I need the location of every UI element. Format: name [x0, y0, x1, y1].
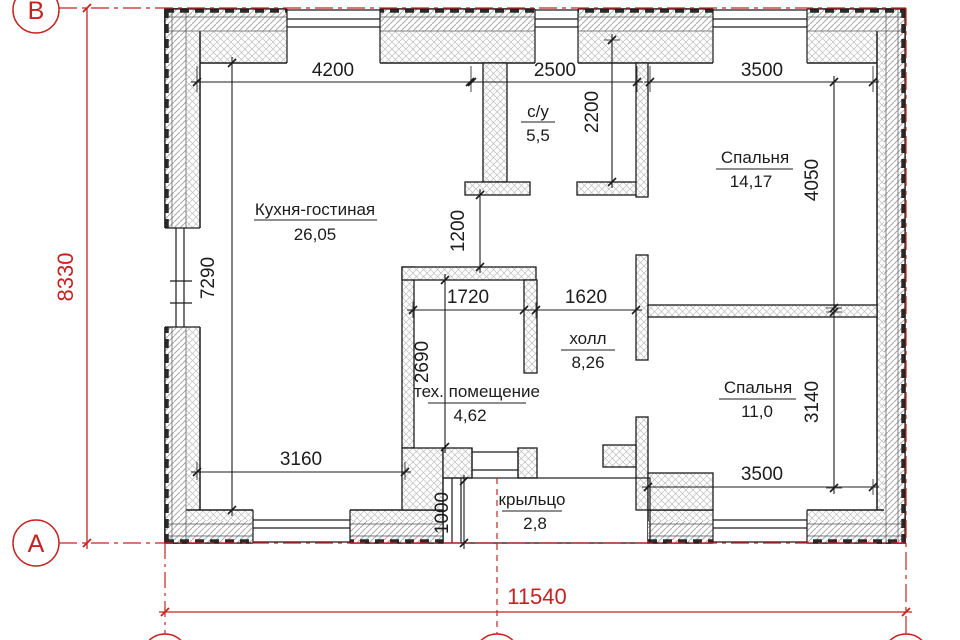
dim-passage: 1200: [448, 210, 469, 252]
grid-axis-b-label: В: [28, 0, 45, 25]
room-label-bath-area: 5,5: [526, 126, 550, 145]
room-label-porch-area: 2,8: [523, 514, 547, 533]
dim-kitchen-bottom-width: 3160: [280, 449, 322, 470]
dim-overall-width: 11540: [507, 584, 567, 609]
dim-bedroom2-width: 3500: [741, 464, 783, 485]
window-bedroom1-top: [713, 7, 807, 64]
room-label-bedroom1-area: 14,17: [730, 172, 773, 191]
room-label-kitchen-area: 26,05: [294, 225, 337, 244]
window-kitchen-bottom: [253, 508, 350, 545]
room-label-hall-name: холл: [569, 329, 606, 348]
floor-plan-drawing: 4200 2500 3500 2200 4050 7290 1200 1720 …: [0, 0, 960, 640]
room-label-bedroom2-name: Спальня: [724, 378, 792, 397]
dim-bedroom1-depth: 4050: [802, 159, 823, 201]
dim-tech-depth: 2690: [412, 341, 433, 383]
grid-axis-a-label: А: [28, 530, 45, 558]
window-kitchen-top: [287, 7, 380, 64]
room-label-bedroom1-name: Спальня: [721, 148, 789, 167]
window-bedroom2-bottom: [713, 508, 807, 545]
window-kitchen-left: [162, 228, 201, 327]
dim-bedroom2-depth: 3140: [802, 381, 823, 423]
dim-overall-height: 8330: [53, 253, 78, 302]
room-label-tech-name: тех. помещение: [414, 382, 540, 401]
dim-tech-width: 1720: [447, 287, 489, 308]
room-label-tech-area: 4,62: [453, 406, 486, 425]
room-label-kitchen-name: Кухня-гостиная: [255, 200, 375, 219]
dim-hall-width: 1620: [565, 287, 607, 308]
room-label-bedroom2-area: 11,0: [741, 402, 773, 421]
window-bath-top: [535, 7, 578, 64]
dim-bedroom1-width: 3500: [741, 60, 783, 81]
dim-kitchen-depth: 7290: [198, 257, 219, 299]
dim-porch-depth: 1000: [432, 492, 453, 534]
paper-background: [0, 0, 960, 640]
dim-bath-width: 2500: [534, 60, 576, 81]
floor-plan-page: 4200 2500 3500 2200 4050 7290 1200 1720 …: [0, 0, 960, 640]
room-label-porch-name: крыльцо: [499, 490, 566, 509]
room-label-bath-name: с/у: [527, 102, 549, 121]
room-label-hall-area: 8,26: [571, 353, 604, 372]
dim-kitchen-width: 4200: [312, 60, 354, 81]
dim-bath-depth: 2200: [582, 91, 603, 133]
